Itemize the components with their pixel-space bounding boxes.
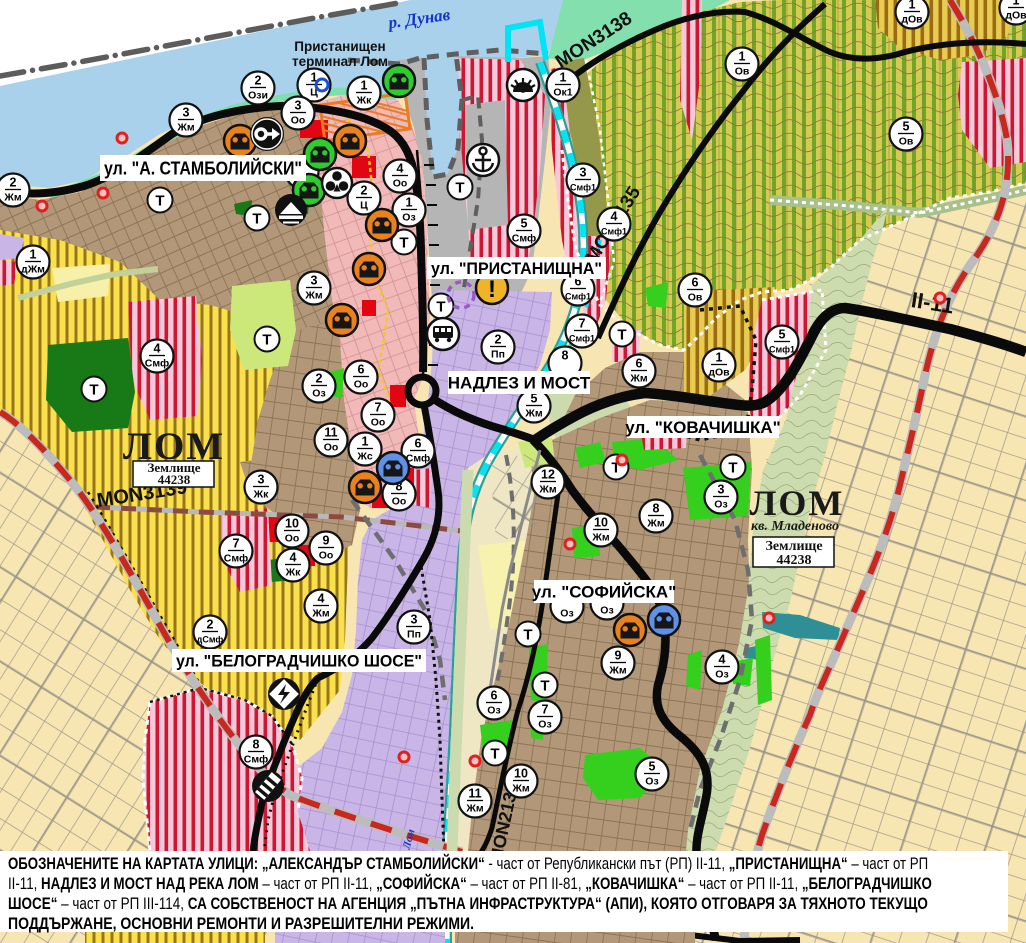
- svg-text:Пристанищен: Пристанищен: [294, 39, 385, 54]
- svg-text:!: !: [488, 276, 496, 303]
- svg-text:Оз: Оз: [560, 608, 573, 620]
- svg-text:Жм: Жм: [304, 290, 322, 302]
- svg-text:10: 10: [594, 516, 608, 530]
- svg-text:6: 6: [491, 689, 498, 703]
- svg-text:11: 11: [468, 787, 481, 801]
- svg-text:Оо: Оо: [319, 550, 334, 562]
- svg-text:Пп: Пп: [491, 349, 505, 361]
- svg-text:4: 4: [719, 653, 726, 667]
- svg-text:2: 2: [361, 184, 368, 198]
- svg-text:Смф: Смф: [224, 553, 248, 565]
- svg-text:Оо: Оо: [354, 379, 369, 391]
- svg-text:дОв: дОв: [708, 367, 730, 379]
- svg-text:4: 4: [290, 551, 297, 565]
- svg-text:Т: Т: [617, 327, 626, 344]
- svg-text:Жм: Жм: [465, 803, 483, 815]
- svg-text:Ози: Ози: [248, 90, 268, 102]
- svg-text:44238: 44238: [777, 553, 812, 568]
- svg-text:Оз: Оз: [600, 605, 613, 617]
- svg-text:Т: Т: [540, 678, 549, 695]
- svg-text:НАДЛЕЗ И МОСТ: НАДЛЕЗ И МОСТ: [448, 374, 591, 393]
- svg-text:Смф: Смф: [406, 453, 430, 465]
- svg-text:1: 1: [739, 50, 746, 64]
- svg-text:3: 3: [183, 106, 190, 120]
- svg-text:Землище: Землище: [765, 539, 822, 554]
- svg-text:5: 5: [521, 217, 528, 231]
- svg-text:Жм: Жм: [3, 192, 21, 204]
- svg-text:1: 1: [406, 196, 413, 210]
- svg-text:8: 8: [653, 502, 660, 516]
- svg-text:11: 11: [324, 426, 337, 440]
- svg-text:Жм: Жм: [538, 484, 556, 496]
- svg-text:3: 3: [258, 473, 265, 487]
- svg-text:7: 7: [542, 703, 549, 717]
- svg-text:Т: Т: [155, 193, 164, 210]
- svg-text:Т: Т: [523, 627, 532, 644]
- svg-text:Оо: Оо: [392, 496, 407, 508]
- svg-text:Жм: Жм: [311, 608, 329, 620]
- svg-text:Т: Т: [262, 332, 271, 349]
- svg-text:7: 7: [233, 537, 240, 551]
- svg-text:ул. "ПРИСТАНИЩНА": ул. "ПРИСТАНИЩНА": [431, 259, 602, 278]
- svg-text:Пп: Пп: [407, 629, 421, 641]
- svg-text:5: 5: [779, 328, 786, 342]
- svg-text:7: 7: [375, 401, 382, 415]
- svg-text:Смф: Смф: [244, 754, 268, 766]
- svg-text:дСмф: дСмф: [197, 635, 224, 645]
- svg-text:4: 4: [318, 592, 325, 606]
- svg-text:5: 5: [649, 760, 656, 774]
- svg-text:Ц: Ц: [360, 200, 368, 212]
- svg-text:3: 3: [718, 483, 725, 497]
- svg-text:Т: Т: [399, 235, 408, 252]
- svg-text:1: 1: [909, 0, 916, 12]
- svg-text:44238: 44238: [158, 472, 191, 487]
- svg-text:2: 2: [316, 372, 323, 386]
- svg-text:1: 1: [560, 71, 567, 85]
- svg-text:дОв: дОв: [901, 14, 923, 26]
- svg-text:Смф: Смф: [145, 358, 169, 370]
- svg-text:9: 9: [323, 534, 330, 548]
- svg-text:Смф1: Смф1: [565, 292, 591, 302]
- svg-text:Т: Т: [490, 746, 499, 763]
- svg-text:Оо: Оо: [285, 533, 300, 545]
- svg-text:Т: Т: [89, 382, 98, 399]
- svg-text:Ок1: Ок1: [553, 87, 572, 99]
- svg-text:Смф1: Смф1: [569, 334, 595, 344]
- svg-text:1: 1: [361, 79, 368, 93]
- svg-text:1: 1: [30, 248, 37, 262]
- svg-text:Жм: Жм: [591, 532, 609, 544]
- svg-text:Смф: Смф: [512, 233, 536, 245]
- svg-text:терминал Лом: терминал Лом: [292, 54, 388, 69]
- svg-text:Жм: Жм: [629, 373, 647, 385]
- svg-text:Жк: Жк: [285, 567, 301, 579]
- svg-text:9: 9: [615, 649, 622, 663]
- svg-text:ШОСЕ“ – част от РП III-114, СА: ШОСЕ“ – част от РП III-114, СА СОБСТВЕНО…: [8, 895, 928, 914]
- svg-text:1: 1: [716, 351, 723, 365]
- svg-text:Оз: Оз: [645, 776, 658, 788]
- svg-text:Оз: Оз: [312, 388, 325, 400]
- svg-text:Т: Т: [728, 460, 737, 477]
- svg-text:II-11, НАДЛЕЗ И МОСТ НАД РЕКА: II-11, НАДЛЕЗ И МОСТ НАД РЕКА ЛОМ – част…: [8, 874, 932, 894]
- svg-text:3: 3: [580, 166, 587, 180]
- svg-text:Смф1: Смф1: [570, 183, 596, 193]
- svg-text:ЛОМ: ЛОМ: [750, 483, 845, 523]
- svg-text:7: 7: [579, 317, 586, 331]
- svg-text:10: 10: [285, 517, 299, 531]
- svg-text:2: 2: [255, 74, 262, 88]
- svg-text:ул. "СОФИЙСКА": ул. "СОФИЙСКА": [532, 583, 677, 602]
- svg-text:4: 4: [611, 210, 618, 224]
- svg-text:Жм: Жм: [524, 408, 542, 420]
- svg-text:2: 2: [207, 618, 214, 632]
- svg-text:дОв: дОв: [1005, 10, 1026, 22]
- svg-text:Смф1: Смф1: [601, 227, 627, 237]
- svg-text:3: 3: [295, 99, 302, 113]
- svg-text:2: 2: [10, 176, 17, 190]
- svg-text:1: 1: [1013, 0, 1020, 8]
- svg-text:6: 6: [692, 276, 699, 290]
- svg-text:Оз: Оз: [487, 705, 500, 717]
- svg-text:кв. Младеново: кв. Младеново: [751, 519, 839, 534]
- svg-text:Т: Т: [252, 211, 261, 228]
- svg-text:4: 4: [154, 342, 161, 356]
- svg-text:10: 10: [514, 767, 528, 781]
- svg-text:Т: Т: [436, 299, 445, 316]
- svg-text:3: 3: [411, 613, 418, 627]
- svg-text:Оз: Оз: [538, 719, 551, 731]
- svg-text:Смф1: Смф1: [769, 345, 795, 355]
- svg-text:8: 8: [562, 349, 569, 363]
- svg-text:Оо: Оо: [371, 417, 386, 429]
- svg-text:Оз: Оз: [714, 499, 727, 511]
- svg-text:Жм: Жм: [608, 665, 626, 677]
- svg-text:Ов: Ов: [735, 66, 750, 78]
- svg-text:6: 6: [415, 437, 422, 451]
- svg-text:Жм: Жм: [176, 122, 194, 134]
- svg-text:ул. "БЕЛОГРАДЧИШКО ШОСЕ": ул. "БЕЛОГРАДЧИШКО ШОСЕ": [176, 652, 422, 671]
- svg-text:Ов: Ов: [688, 292, 703, 304]
- svg-text:ул. "А. СТАМБОЛИЙСКИ": ул. "А. СТАМБОЛИЙСКИ": [104, 157, 302, 178]
- svg-text:6: 6: [636, 357, 643, 371]
- svg-text:Оо: Оо: [291, 115, 306, 127]
- svg-text:2: 2: [495, 333, 502, 347]
- svg-text:Жс: Жс: [356, 451, 372, 463]
- svg-text:Оз: Оз: [402, 212, 415, 224]
- svg-text:5: 5: [903, 120, 910, 134]
- svg-text:4: 4: [397, 162, 404, 176]
- svg-text:дЖм: дЖм: [21, 264, 45, 276]
- svg-text:Жк: Жк: [253, 489, 269, 501]
- svg-text:Оо: Оо: [324, 442, 339, 454]
- svg-text:Оо: Оо: [393, 178, 408, 190]
- svg-text:3: 3: [311, 274, 318, 288]
- svg-text:Жм: Жм: [511, 783, 529, 795]
- svg-text:8: 8: [253, 738, 260, 752]
- svg-text:ул. "КОВАЧИШКА": ул. "КОВАЧИШКА": [625, 418, 781, 437]
- svg-text:Оз: Оз: [715, 669, 728, 681]
- svg-text:Ов: Ов: [899, 136, 914, 148]
- svg-text:Т: Т: [455, 180, 464, 197]
- svg-text:Жк: Жк: [356, 95, 372, 107]
- svg-text:1: 1: [362, 435, 369, 449]
- svg-text:12: 12: [541, 468, 555, 482]
- svg-text:6: 6: [358, 363, 365, 377]
- svg-text:ПОДДЪРЖАНЕ, ОСНОВНИ РЕМОНТИ И: ПОДДЪРЖАНЕ, ОСНОВНИ РЕМОНТИ И РАЗРЕШИТЕЛ…: [8, 915, 474, 933]
- svg-text:Жм: Жм: [646, 518, 664, 530]
- svg-text:ОБОЗНАЧЕНИТЕ НА КАРТАТА УЛИЦИ:: ОБОЗНАЧЕНИТЕ НА КАРТАТА УЛИЦИ: „АЛЕКСАНД…: [8, 854, 928, 874]
